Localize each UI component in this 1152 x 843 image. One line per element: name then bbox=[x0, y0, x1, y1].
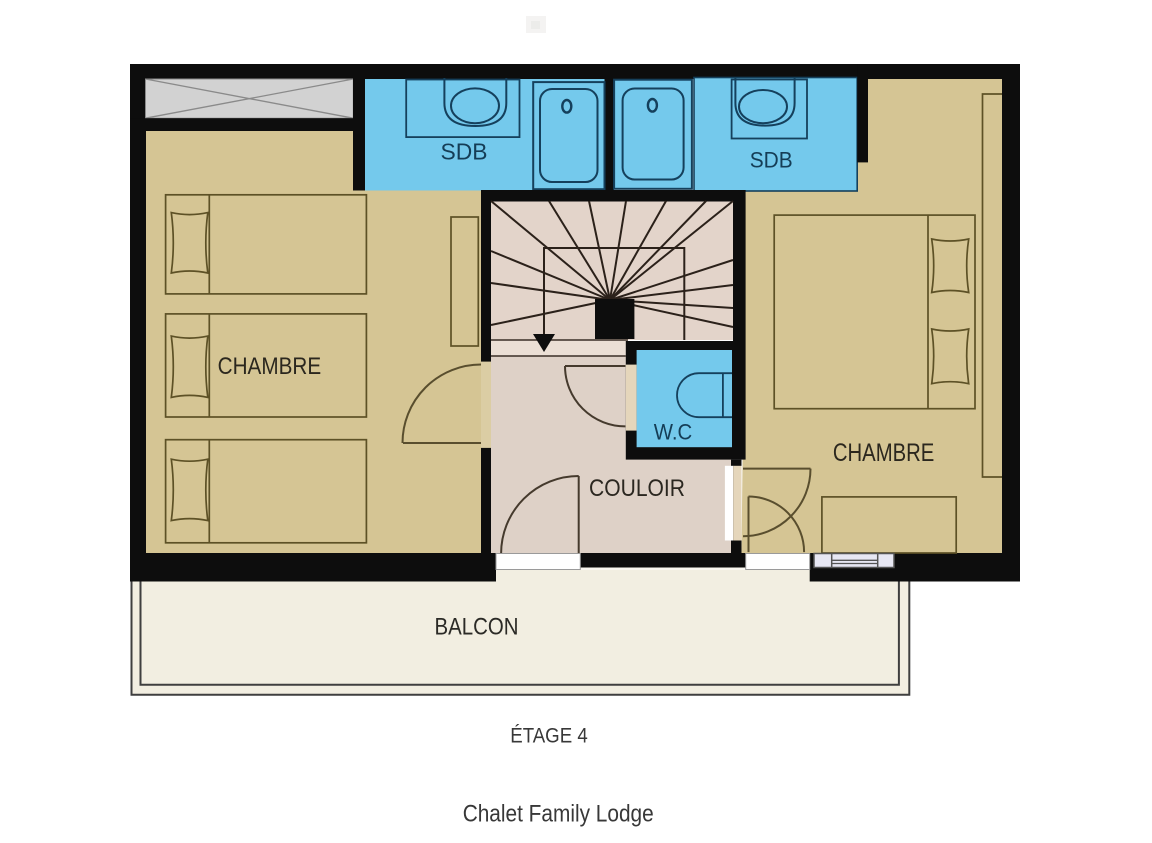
svg-text:W.C: W.C bbox=[654, 420, 693, 445]
svg-text:CHAMBRE: CHAMBRE bbox=[218, 353, 322, 380]
svg-text:CHAMBRE: CHAMBRE bbox=[833, 439, 935, 467]
svg-text:Chalet Family Lodge: Chalet Family Lodge bbox=[463, 801, 654, 828]
svg-text:ÉTAGE 4: ÉTAGE 4 bbox=[510, 724, 588, 747]
svg-text:COULOIR: COULOIR bbox=[589, 475, 685, 502]
svg-text:BALCON: BALCON bbox=[435, 614, 519, 641]
svg-text:SDB: SDB bbox=[441, 139, 488, 165]
svg-text:SDB: SDB bbox=[750, 148, 793, 173]
